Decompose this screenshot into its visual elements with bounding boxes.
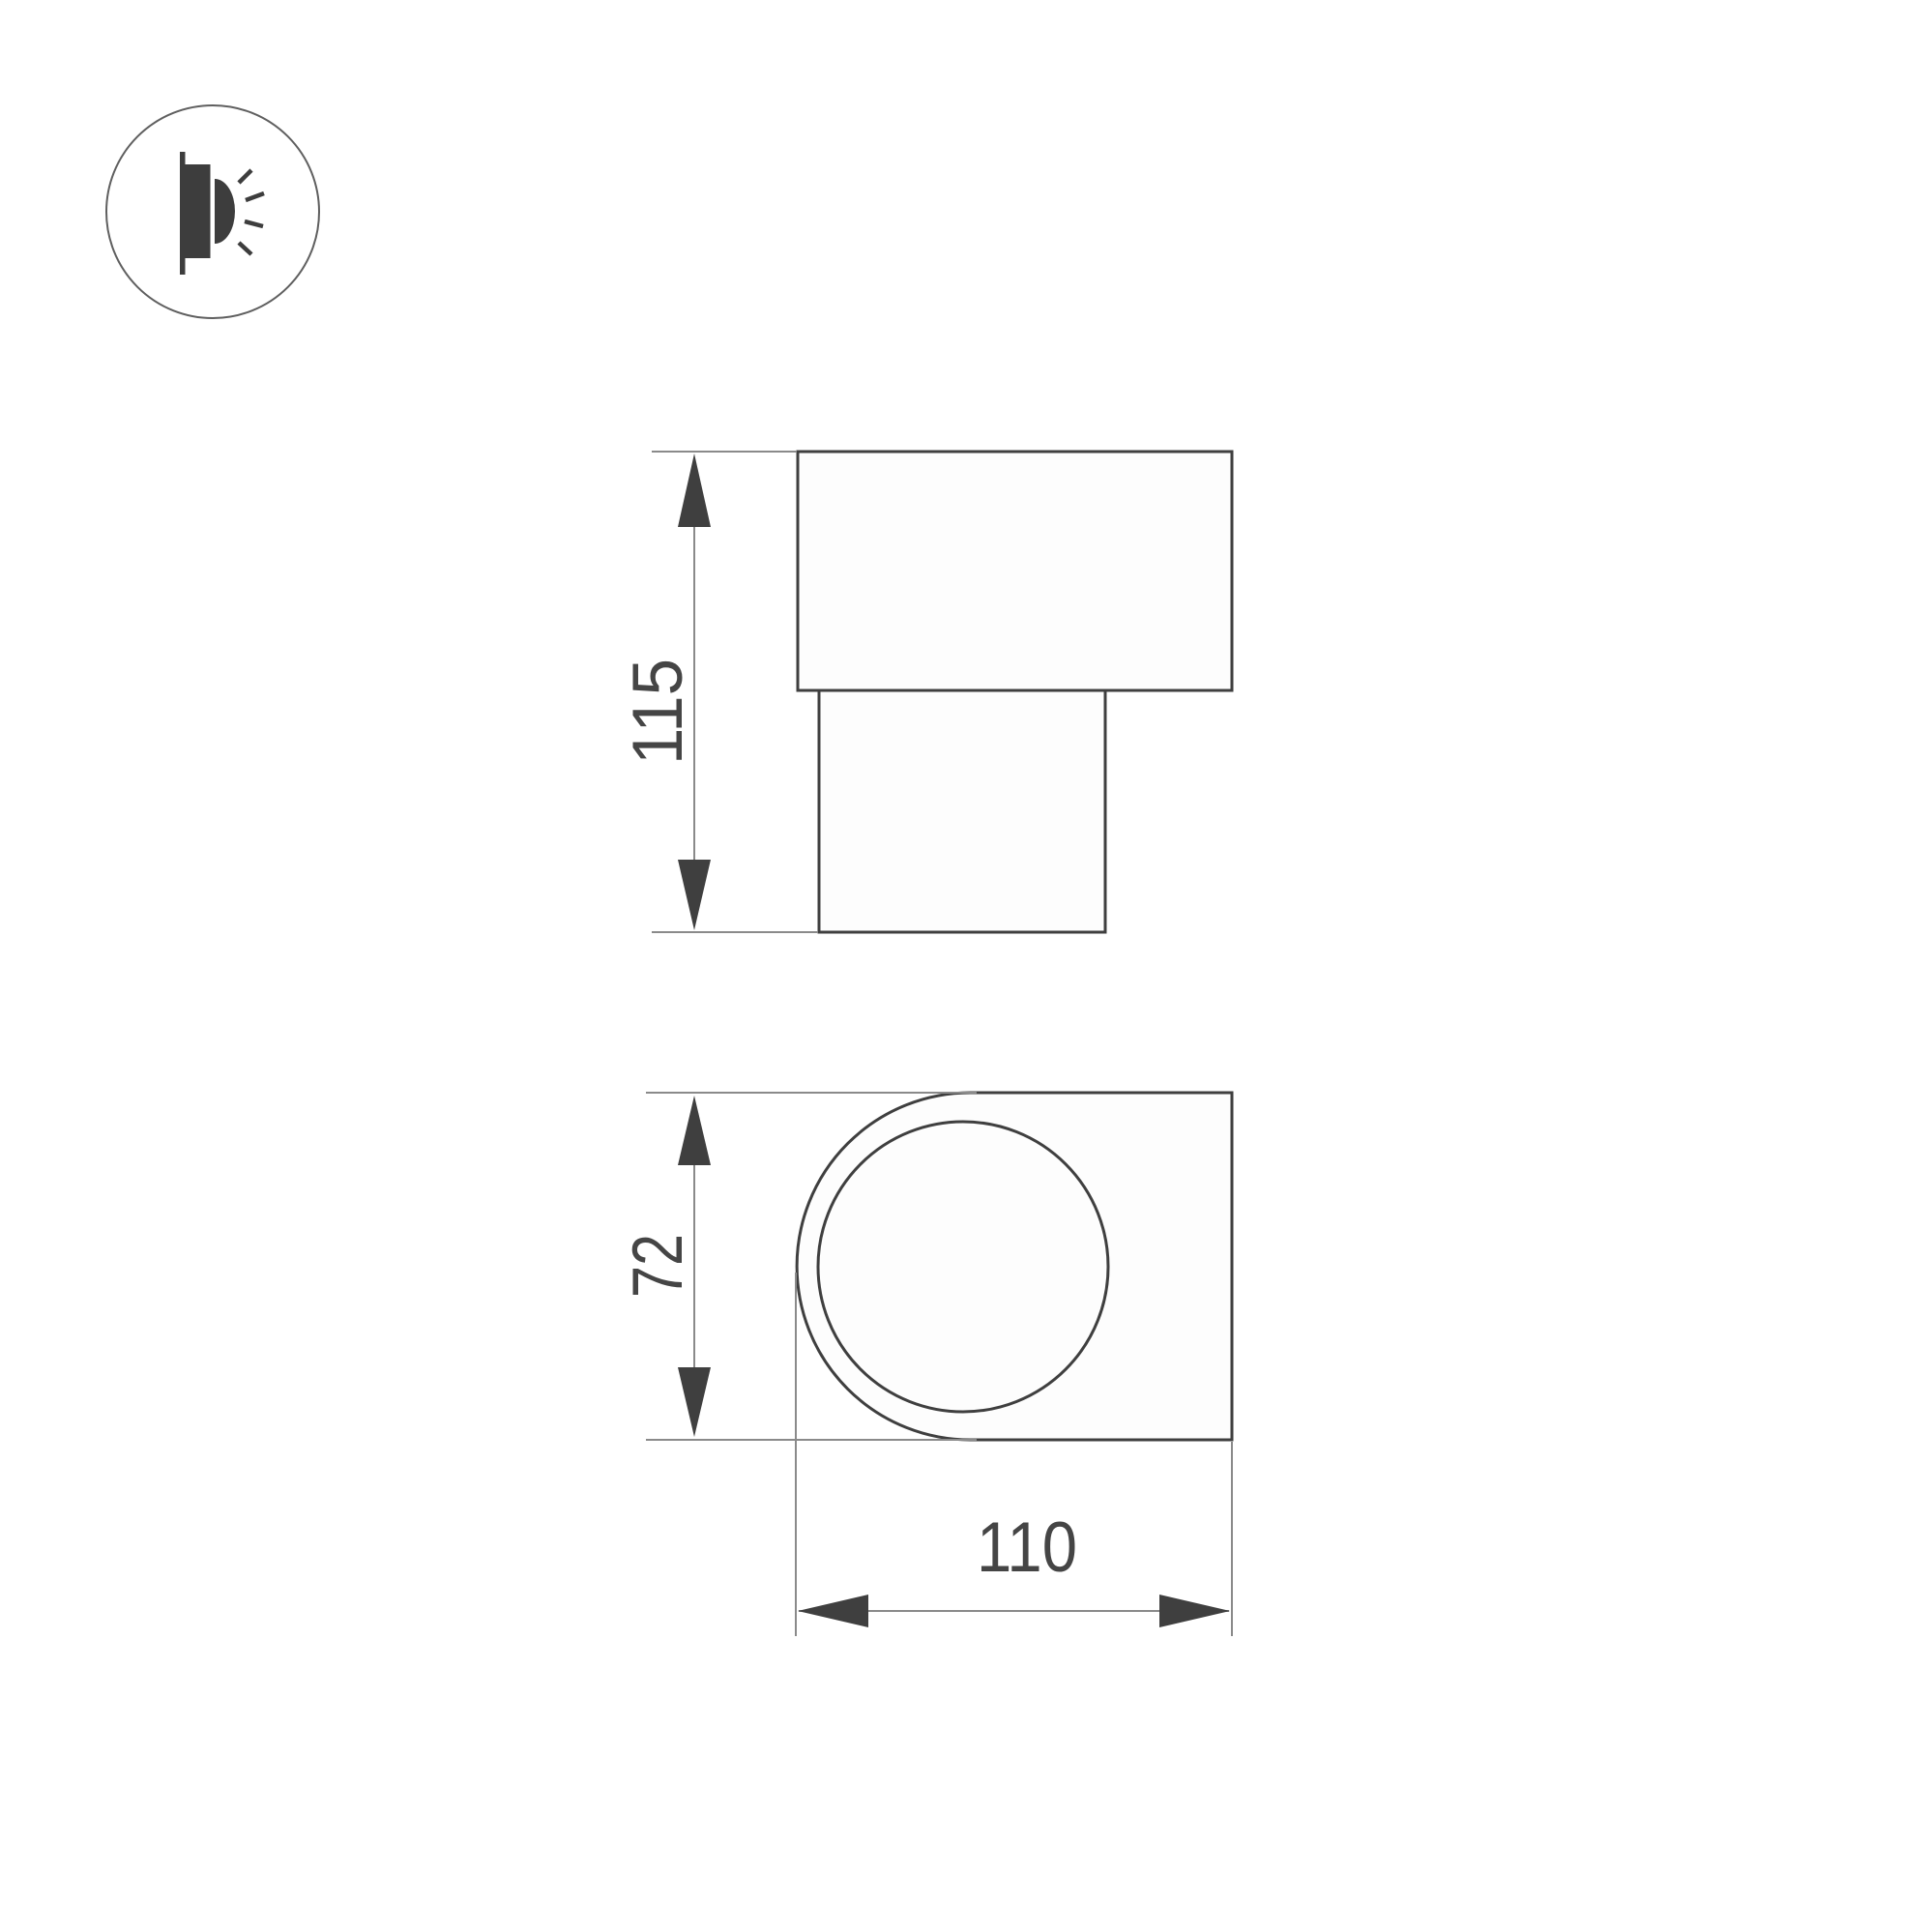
side-view-head-outline xyxy=(798,452,1232,690)
front-view-lens-circle xyxy=(818,1122,1108,1412)
lamp-body-icon-part xyxy=(185,164,211,258)
technical-drawing: 115 72 110 xyxy=(0,0,1932,1932)
canvas-background xyxy=(0,0,1932,1932)
side-view-body-outline xyxy=(819,690,1105,932)
dimension-label-72: 72 xyxy=(619,1234,697,1298)
dimension-label-110: 110 xyxy=(977,1508,1077,1587)
logo-ring xyxy=(106,105,319,318)
dimension-label-115: 115 xyxy=(619,659,697,765)
wall-line-icon-part xyxy=(180,152,186,275)
front-view xyxy=(797,1093,1232,1440)
brand-logo xyxy=(106,105,319,318)
